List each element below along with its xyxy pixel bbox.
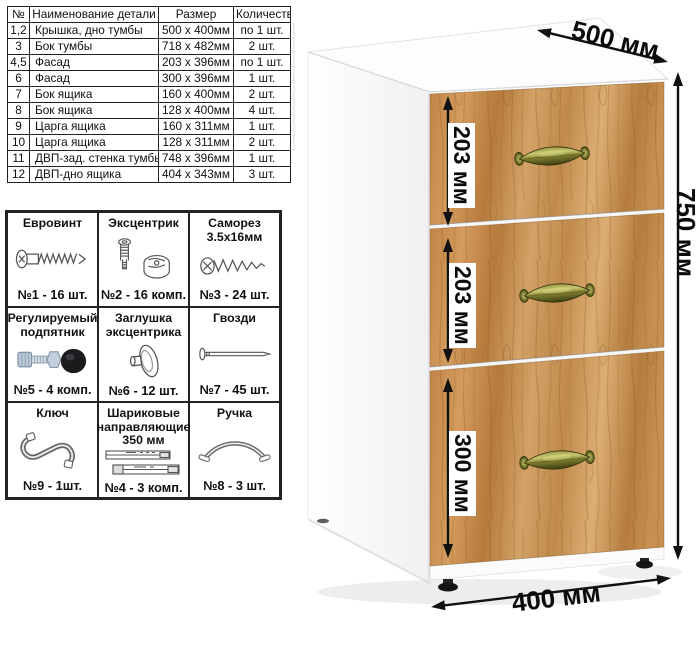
dim-height-label: 750 мм [670, 188, 700, 277]
dim-drawer3-label: 300 мм [449, 431, 476, 516]
dim-drawer1-label: 203 мм [448, 123, 475, 208]
cabinet-side-panel [308, 52, 430, 582]
dim-drawer2-label: 203 мм [449, 263, 476, 348]
cabinet-drawing [0, 0, 700, 648]
assembly-sheet: № Наименование детали Размер Количество … [0, 0, 700, 648]
dim-height-arrow [673, 72, 683, 560]
ruler-artifact [289, 24, 294, 150]
